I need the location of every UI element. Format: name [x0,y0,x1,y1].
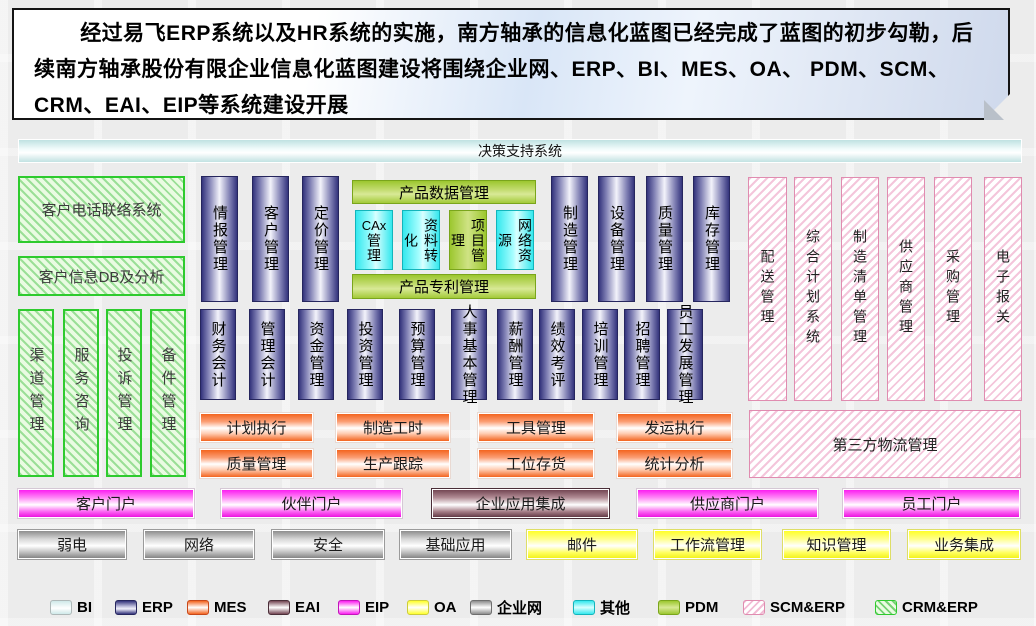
mes-box: 计划执行 [200,413,313,442]
legend-swatch-other [573,600,595,615]
erp-vbar: 设备管理 [598,176,635,302]
legend-label: PDM [685,599,718,616]
legend-label: CRM&ERP [902,599,978,616]
erp-vbar: 财务会计 [200,309,236,400]
erp-vbar: 投资管理 [347,309,383,400]
legend-item: PDM [658,599,718,615]
legend-item: BI [50,599,92,615]
legend-label: EAI [295,599,320,616]
logistics-box: 第三方物流管理 [749,410,1021,478]
scm-vbar: 供应商管理 [887,177,925,401]
erp-vbar: 人事基本管理 [451,309,487,400]
legend-item: EIP [338,599,389,615]
crm-box: 客户电话联络系统 [18,176,185,243]
pdm-cell-cax: CAx 管理 [355,210,393,270]
mes-box: 制造工时 [336,413,450,442]
erp-vbar: 薪酬管理 [497,309,533,400]
erp-vbar: 库存管理 [693,176,730,302]
legend-swatch-oa [407,600,429,615]
legend-swatch-crm [875,600,897,615]
pdm-footer-bar: 产品专利管理 [352,274,536,299]
portal-customer: 客户门户 [18,489,194,518]
legend-item: OA [407,599,457,615]
note-text: 经过易飞ERP系统以及HR系统的实施，南方轴承的信息化蓝图已经完成了蓝图的初步勾… [34,16,992,124]
crm-box: 客户信息DB及分析 [18,256,185,296]
corner-fold-flap-icon [984,100,1004,120]
erp-vbar: 预算管理 [399,309,435,400]
legend-label: 其他 [600,597,630,618]
legend-label: ERP [142,599,173,616]
oa-box: 邮件 [527,530,637,559]
legend-swatch-eip [338,600,360,615]
mes-box: 工具管理 [478,413,594,442]
legend-swatch-mes [187,600,209,615]
legend-item: MES [187,599,247,615]
legend-item: 企业网 [470,599,542,615]
legend-swatch-pdm [658,600,680,615]
pdm-cell: 项目管理 [449,210,487,270]
erp-vbar: 绩效考评 [539,309,575,400]
erp-vbar: 培训管理 [582,309,618,400]
erp-vbar: 情报管理 [201,176,238,302]
legend-label: OA [434,599,457,616]
erp-vbar: 制造管理 [551,176,588,302]
erp-vbar: 定价管理 [302,176,339,302]
legend-label: SCM&ERP [770,599,845,616]
mes-box: 发运执行 [617,413,732,442]
erp-vbar: 员工发展管理 [667,309,703,400]
scm-vbar: 采购管理 [934,177,972,401]
infra-box: 基础应用 [400,530,511,559]
infra-box: 网络 [144,530,254,559]
mes-box: 工位存货 [478,449,594,478]
legend-swatch-eai [268,600,290,615]
pdm-cell: 资料转化 [402,210,440,270]
portal-employee: 员工门户 [843,489,1020,518]
legend-label: 企业网 [497,597,542,618]
pdm-header-bar: 产品数据管理 [352,180,536,204]
oa-box: 工作流管理 [654,530,761,559]
portal-partner: 伙伴门户 [221,489,402,518]
erp-vbar: 管理会计 [249,309,285,400]
decision-support-bar: 决策支持系统 [18,139,1022,163]
portal-supplier: 供应商门户 [637,489,818,518]
erp-vbar: 招聘管理 [624,309,660,400]
note-box: 经过易飞ERP系统以及HR系统的实施，南方轴承的信息化蓝图已经完成了蓝图的初步勾… [12,8,1010,120]
crm-vbar: 备件管理 [150,309,186,477]
mes-box: 统计分析 [617,449,732,478]
scm-vbar: 制造清单管理 [841,177,879,401]
pdm-cell: 网络资源 [496,210,534,270]
erp-vbar: 资金管理 [298,309,334,400]
crm-vbar: 服务咨询 [63,309,99,477]
legend-item: ERP [115,599,173,615]
legend-swatch-scm [743,600,765,615]
decision-support-label: 决策支持系统 [478,141,562,161]
legend-item: SCM&ERP [743,599,845,615]
crm-vbar: 渠道管理 [18,309,54,477]
oa-box: 知识管理 [783,530,890,559]
legend-item: EAI [268,599,320,615]
crm-box-label: 客户信息DB及分析 [39,266,165,287]
erp-vbar: 质量管理 [646,176,683,302]
scm-vbar: 综合计划系统 [794,177,832,401]
oa-box: 业务集成 [908,530,1020,559]
slide-canvas: 经过易飞ERP系统以及HR系统的实施，南方轴承的信息化蓝图已经完成了蓝图的初步勾… [0,0,1036,626]
legend-swatch-bi [50,600,72,615]
legend-item: CRM&ERP [875,599,978,615]
legend-label: BI [77,599,92,616]
infra-box: 安全 [272,530,384,559]
erp-vbar: 客户管理 [252,176,289,302]
eai-integration-box: 企业应用集成 [432,489,609,518]
mes-box: 质量管理 [200,449,313,478]
crm-vbar: 投诉管理 [106,309,142,477]
legend-item: 其他 [573,599,630,615]
scm-vbar: 电子报关 [984,177,1022,401]
legend-label: MES [214,599,247,616]
mes-box: 生产跟踪 [336,449,450,478]
crm-box-label: 客户电话联络系统 [41,199,161,220]
infra-box: 弱电 [18,530,126,559]
legend-swatch-net [470,600,492,615]
legend-swatch-erp [115,600,137,615]
legend-label: EIP [365,599,389,616]
scm-vbar: 配送管理 [748,177,787,401]
